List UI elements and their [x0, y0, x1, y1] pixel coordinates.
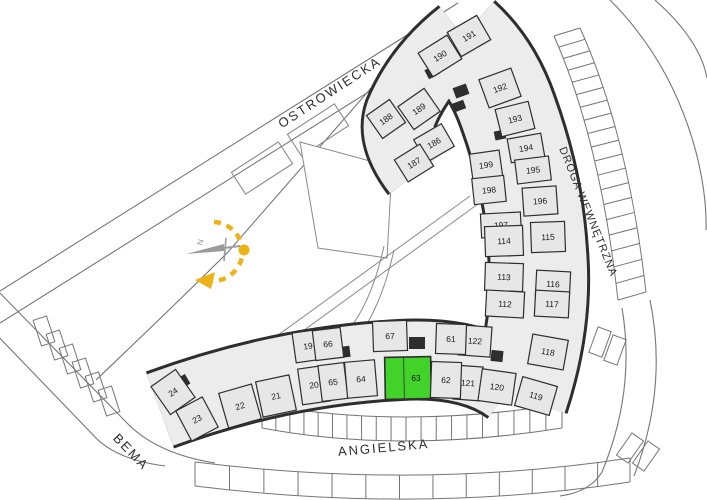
unit-66-label: 66: [323, 338, 334, 349]
unit-120[interactable]: 120: [478, 369, 516, 405]
north-arrow-icon: [186, 244, 224, 254]
north-arrow-tick: [224, 238, 226, 261]
unit-65-label: 65: [328, 376, 339, 387]
unit-195-label: 195: [525, 164, 541, 176]
street-line: [610, 0, 706, 230]
unit-199-label: 199: [478, 159, 494, 171]
unit-62-label: 62: [441, 375, 451, 385]
unit-198[interactable]: 198: [472, 175, 507, 204]
unit-122-label: 122: [468, 336, 483, 347]
unit-63-label: 63: [411, 373, 421, 383]
unit-62[interactable]: 62: [430, 361, 461, 398]
unit-113[interactable]: 113: [485, 262, 524, 291]
unit-115[interactable]: 115: [530, 221, 565, 252]
unit-112-label: 112: [498, 299, 512, 310]
unit-20-label: 20: [309, 379, 320, 390]
site-plan: 1901911921931941951961991981971881891861…: [0, 0, 707, 500]
unit-196-label: 196: [533, 195, 548, 206]
compass: N: [186, 222, 250, 289]
unit-64[interactable]: 64: [344, 360, 377, 398]
unit-67-label: 67: [385, 331, 395, 341]
unit-113-label: 113: [497, 272, 511, 282]
unit-67[interactable]: 67: [372, 320, 407, 351]
parking-stall: [589, 327, 611, 357]
site-plan-svg: 1901911921931941951961991981971881891861…: [0, 0, 707, 500]
unit-120-label: 120: [489, 381, 505, 393]
unit-19-label: 19: [303, 340, 314, 351]
unit-118[interactable]: 118: [528, 334, 569, 370]
parking-stall: [46, 330, 68, 360]
unit-195[interactable]: 195: [515, 156, 552, 184]
unit-121-label: 121: [461, 378, 476, 389]
parking-stall: [72, 358, 94, 388]
street-line: [0, 330, 165, 466]
parking-stall: [604, 335, 626, 365]
street-line: [655, 0, 707, 78]
stair-core: [409, 337, 425, 349]
street-label-bema: BEMA: [110, 431, 152, 474]
parking-stall: [98, 386, 120, 416]
unit-115-label: 115: [541, 232, 555, 242]
parking-stall: [59, 344, 81, 374]
north-label: N: [195, 238, 205, 246]
unit-63[interactable]: 63: [385, 357, 432, 400]
parking-stall: [33, 316, 55, 346]
unit-117[interactable]: 117: [534, 290, 569, 318]
unit-65[interactable]: 65: [318, 363, 348, 402]
parking-stall: [633, 441, 660, 471]
unit-66[interactable]: 66: [312, 327, 343, 360]
compass-dot: [239, 245, 250, 256]
unit-21[interactable]: 21: [256, 375, 297, 417]
unit-61[interactable]: 61: [435, 323, 466, 354]
selected-unit-cell[interactable]: [385, 357, 432, 400]
unit-114[interactable]: 114: [484, 225, 523, 256]
parking-stall: [85, 372, 107, 402]
unit-117-label: 117: [545, 299, 559, 310]
unit-196[interactable]: 196: [522, 186, 558, 216]
unit-64-label: 64: [356, 374, 367, 385]
unit-112[interactable]: 112: [485, 290, 524, 318]
stair-core: [490, 350, 503, 362]
unit-116-label: 116: [546, 279, 560, 290]
parking-row: [195, 458, 630, 499]
unit-198-label: 198: [481, 184, 496, 195]
north-arrow-shaft: [224, 246, 240, 248]
unit-114-label: 114: [497, 236, 511, 246]
unit-61-label: 61: [446, 334, 456, 344]
walkway: [350, 246, 384, 328]
